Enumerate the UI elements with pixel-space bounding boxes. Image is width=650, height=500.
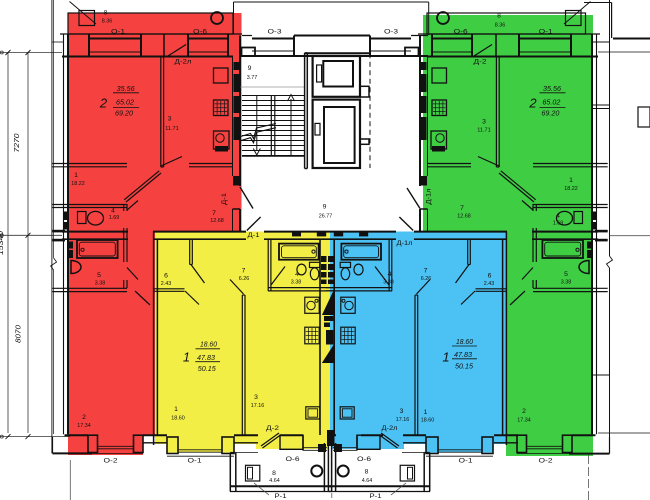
svg-text:4: 4 xyxy=(111,208,115,215)
svg-text:О-6: О-6 xyxy=(357,456,372,463)
svg-text:4.64: 4.64 xyxy=(362,478,373,484)
svg-text:12.68: 12.68 xyxy=(210,218,224,224)
svg-text:7: 7 xyxy=(212,210,216,217)
svg-text:69.20: 69.20 xyxy=(115,111,133,118)
svg-text:18.60: 18.60 xyxy=(200,342,217,349)
svg-text:50.15: 50.15 xyxy=(455,363,473,370)
svg-text:О-6: О-6 xyxy=(286,456,301,463)
svg-text:3: 3 xyxy=(482,119,486,126)
svg-text:35.56: 35.56 xyxy=(543,86,561,93)
svg-text:1: 1 xyxy=(569,177,573,184)
svg-text:5: 5 xyxy=(97,272,101,279)
svg-text:Д-2: Д-2 xyxy=(266,426,280,432)
svg-text:26.77: 26.77 xyxy=(319,214,333,220)
svg-text:15340: 15340 xyxy=(0,231,5,255)
svg-text:18.60: 18.60 xyxy=(171,416,185,422)
svg-text:О-6: О-6 xyxy=(193,29,208,36)
svg-text:О-3: О-3 xyxy=(384,29,399,36)
svg-text:3.77: 3.77 xyxy=(247,75,258,81)
svg-text:2: 2 xyxy=(522,408,526,415)
svg-text:О-1: О-1 xyxy=(188,458,203,465)
svg-text:3.38: 3.38 xyxy=(95,281,106,287)
svg-text:11.71: 11.71 xyxy=(477,128,491,134)
svg-text:4: 4 xyxy=(295,271,299,278)
svg-text:18.22: 18.22 xyxy=(71,181,85,187)
svg-text:47.83: 47.83 xyxy=(197,355,215,362)
svg-text:8: 8 xyxy=(272,470,276,477)
svg-text:7: 7 xyxy=(424,268,428,275)
svg-text:1: 1 xyxy=(174,406,178,413)
svg-text:9: 9 xyxy=(248,65,252,72)
svg-text:6.26: 6.26 xyxy=(421,276,432,282)
svg-text:1: 1 xyxy=(424,409,428,416)
svg-text:8: 8 xyxy=(365,469,369,476)
svg-text:47.83: 47.83 xyxy=(454,352,472,359)
svg-text:4: 4 xyxy=(556,213,560,220)
svg-text:17.34: 17.34 xyxy=(517,418,531,424)
svg-text:65.02: 65.02 xyxy=(542,100,560,107)
svg-text:1: 1 xyxy=(74,172,78,179)
svg-text:О-1: О-1 xyxy=(111,29,126,36)
svg-text:7: 7 xyxy=(460,205,464,212)
svg-text:8.36: 8.36 xyxy=(495,23,506,29)
svg-text:4.64: 4.64 xyxy=(269,478,280,484)
svg-text:Д-1л: Д-1л xyxy=(427,188,433,205)
svg-text:Д-1: Д-1 xyxy=(222,192,228,205)
svg-text:5: 5 xyxy=(564,271,568,278)
svg-text:3: 3 xyxy=(400,408,404,415)
svg-text:Д-2л: Д-2л xyxy=(382,426,399,432)
svg-text:8070: 8070 xyxy=(16,325,23,343)
svg-text:69.20: 69.20 xyxy=(541,111,559,118)
svg-text:11.71: 11.71 xyxy=(165,126,179,132)
svg-text:О-2: О-2 xyxy=(104,458,119,465)
svg-text:17.16: 17.16 xyxy=(251,403,265,409)
svg-text:18.60: 18.60 xyxy=(456,339,473,346)
svg-text:2: 2 xyxy=(82,414,86,421)
svg-text:1.69: 1.69 xyxy=(553,221,564,227)
svg-text:12.68: 12.68 xyxy=(457,214,471,220)
svg-text:2: 2 xyxy=(528,96,537,111)
svg-text:Д-2: Д-2 xyxy=(474,60,488,66)
svg-text:3.38: 3.38 xyxy=(561,280,572,286)
svg-text:О-3: О-3 xyxy=(268,29,283,36)
svg-text:1: 1 xyxy=(442,349,449,364)
svg-text:1: 1 xyxy=(183,349,190,364)
svg-text:8.36: 8.36 xyxy=(102,18,113,24)
svg-text:3.38: 3.38 xyxy=(291,280,302,286)
svg-text:8: 8 xyxy=(497,13,501,20)
svg-text:3: 3 xyxy=(168,116,172,123)
svg-text:17.34: 17.34 xyxy=(77,423,91,429)
svg-text:17.16: 17.16 xyxy=(396,417,410,423)
svg-text:О-2: О-2 xyxy=(539,458,554,465)
svg-text:О-1: О-1 xyxy=(459,458,474,465)
svg-text:Д-2л: Д-2л xyxy=(175,60,193,66)
svg-text:Р-1: Р-1 xyxy=(370,493,383,500)
svg-text:2: 2 xyxy=(99,96,108,111)
svg-text:О-1: О-1 xyxy=(539,29,554,36)
svg-text:35.56: 35.56 xyxy=(117,86,135,93)
svg-text:18.60: 18.60 xyxy=(421,418,435,424)
svg-text:6: 6 xyxy=(164,273,168,280)
svg-text:2.43: 2.43 xyxy=(484,281,495,287)
svg-text:7: 7 xyxy=(242,268,246,275)
svg-text:Д-1л: Д-1л xyxy=(397,241,414,247)
svg-text:4: 4 xyxy=(388,271,392,278)
svg-text:18.22: 18.22 xyxy=(564,186,578,192)
svg-text:О-6: О-6 xyxy=(454,29,469,36)
svg-text:Р-1: Р-1 xyxy=(275,493,288,500)
svg-text:6.26: 6.26 xyxy=(239,276,250,282)
svg-text:3.38: 3.38 xyxy=(383,280,394,286)
svg-text:2.43: 2.43 xyxy=(161,281,172,287)
svg-text:3: 3 xyxy=(254,394,258,401)
svg-text:7270: 7270 xyxy=(14,133,21,152)
svg-text:9: 9 xyxy=(323,204,327,211)
svg-text:65.02: 65.02 xyxy=(116,100,134,107)
svg-text:6: 6 xyxy=(488,273,492,280)
svg-text:8: 8 xyxy=(104,10,108,17)
svg-text:Д-1: Д-1 xyxy=(248,233,261,239)
svg-text:50.15: 50.15 xyxy=(198,366,216,373)
svg-text:1.69: 1.69 xyxy=(109,215,120,221)
